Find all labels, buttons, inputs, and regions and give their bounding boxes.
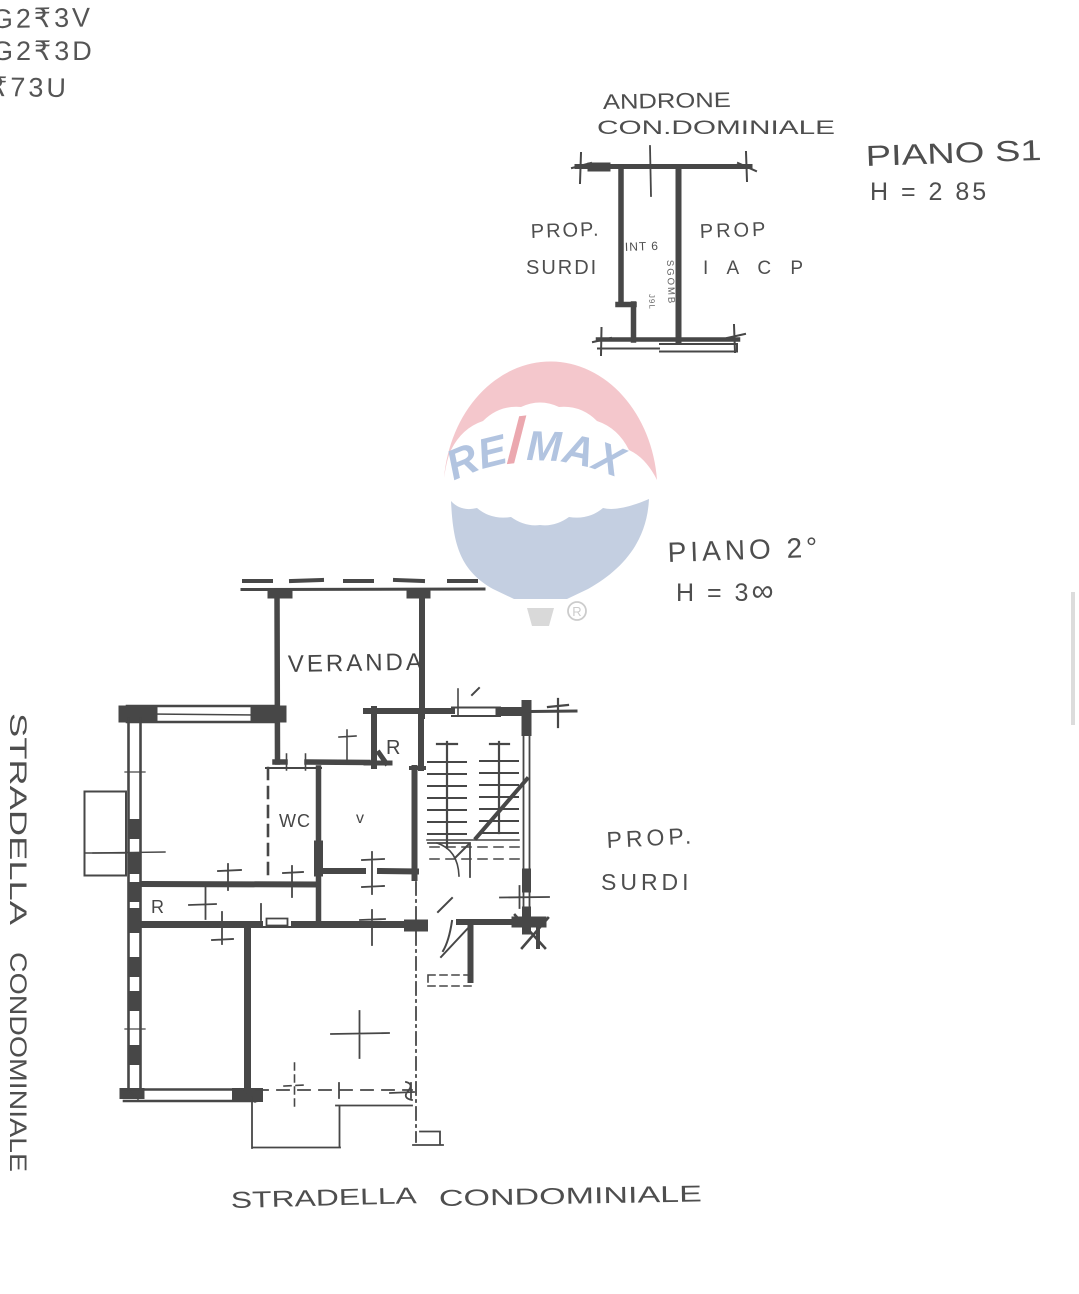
svg-text:R: R [151, 897, 164, 917]
svg-text:₹73U: ₹73U [0, 72, 69, 103]
svg-text:CON.DOMINIALE: CON.DOMINIALE [597, 118, 835, 139]
svg-text:H = 2 85: H = 2 85 [870, 178, 989, 206]
svg-text:PIANO 2°: PIANO 2° [667, 532, 822, 568]
svg-text:STRADELLA: STRADELLA [230, 1182, 418, 1213]
svg-text:R: R [386, 737, 400, 759]
svg-text:PROP.: PROP. [606, 822, 696, 853]
svg-text:J9L: J9L [647, 294, 657, 310]
svg-text:SURDI: SURDI [601, 869, 693, 895]
svg-text:H = 3∞: H = 3∞ [676, 573, 777, 608]
svg-text:VERANDA: VERANDA [288, 649, 425, 678]
svg-text:PROP.: PROP. [530, 219, 600, 243]
svg-text:G2₹3V: G2₹3V [0, 2, 93, 34]
svg-text:G2₹3D: G2₹3D [0, 36, 95, 66]
svg-text:CONDOMINIALE: CONDOMINIALE [439, 1180, 702, 1211]
svg-text:STRADELLA: STRADELLA [4, 713, 31, 925]
svg-text:R: R [572, 604, 581, 619]
svg-text:CONDOMINIALE: CONDOMINIALE [4, 952, 31, 1172]
svg-text:WC: WC [279, 811, 311, 831]
svg-text:I A C P: I A C P [703, 258, 810, 279]
svg-text:PIANO S1: PIANO S1 [865, 135, 1042, 173]
svg-text:PROP: PROP [699, 219, 768, 243]
svg-text:ANDRONE: ANDRONE [603, 89, 731, 114]
svg-text:v: v [356, 810, 364, 827]
svg-text:INT 6: INT 6 [625, 239, 660, 254]
svg-text:SGOMB: SGOMB [664, 260, 677, 306]
svg-text:SURDI: SURDI [526, 257, 598, 279]
